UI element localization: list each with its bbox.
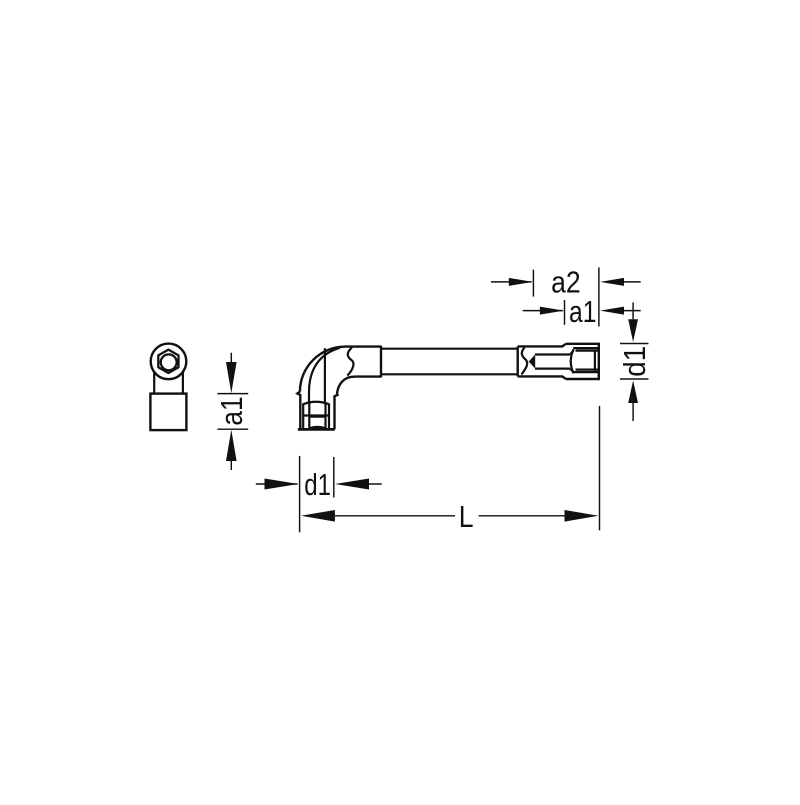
svg-text:a1: a1 [569,294,596,328]
svg-text:a1: a1 [215,396,249,425]
svg-text:L: L [459,500,474,534]
svg-text:d1: d1 [304,467,331,502]
svg-text:d1: d1 [617,346,652,377]
